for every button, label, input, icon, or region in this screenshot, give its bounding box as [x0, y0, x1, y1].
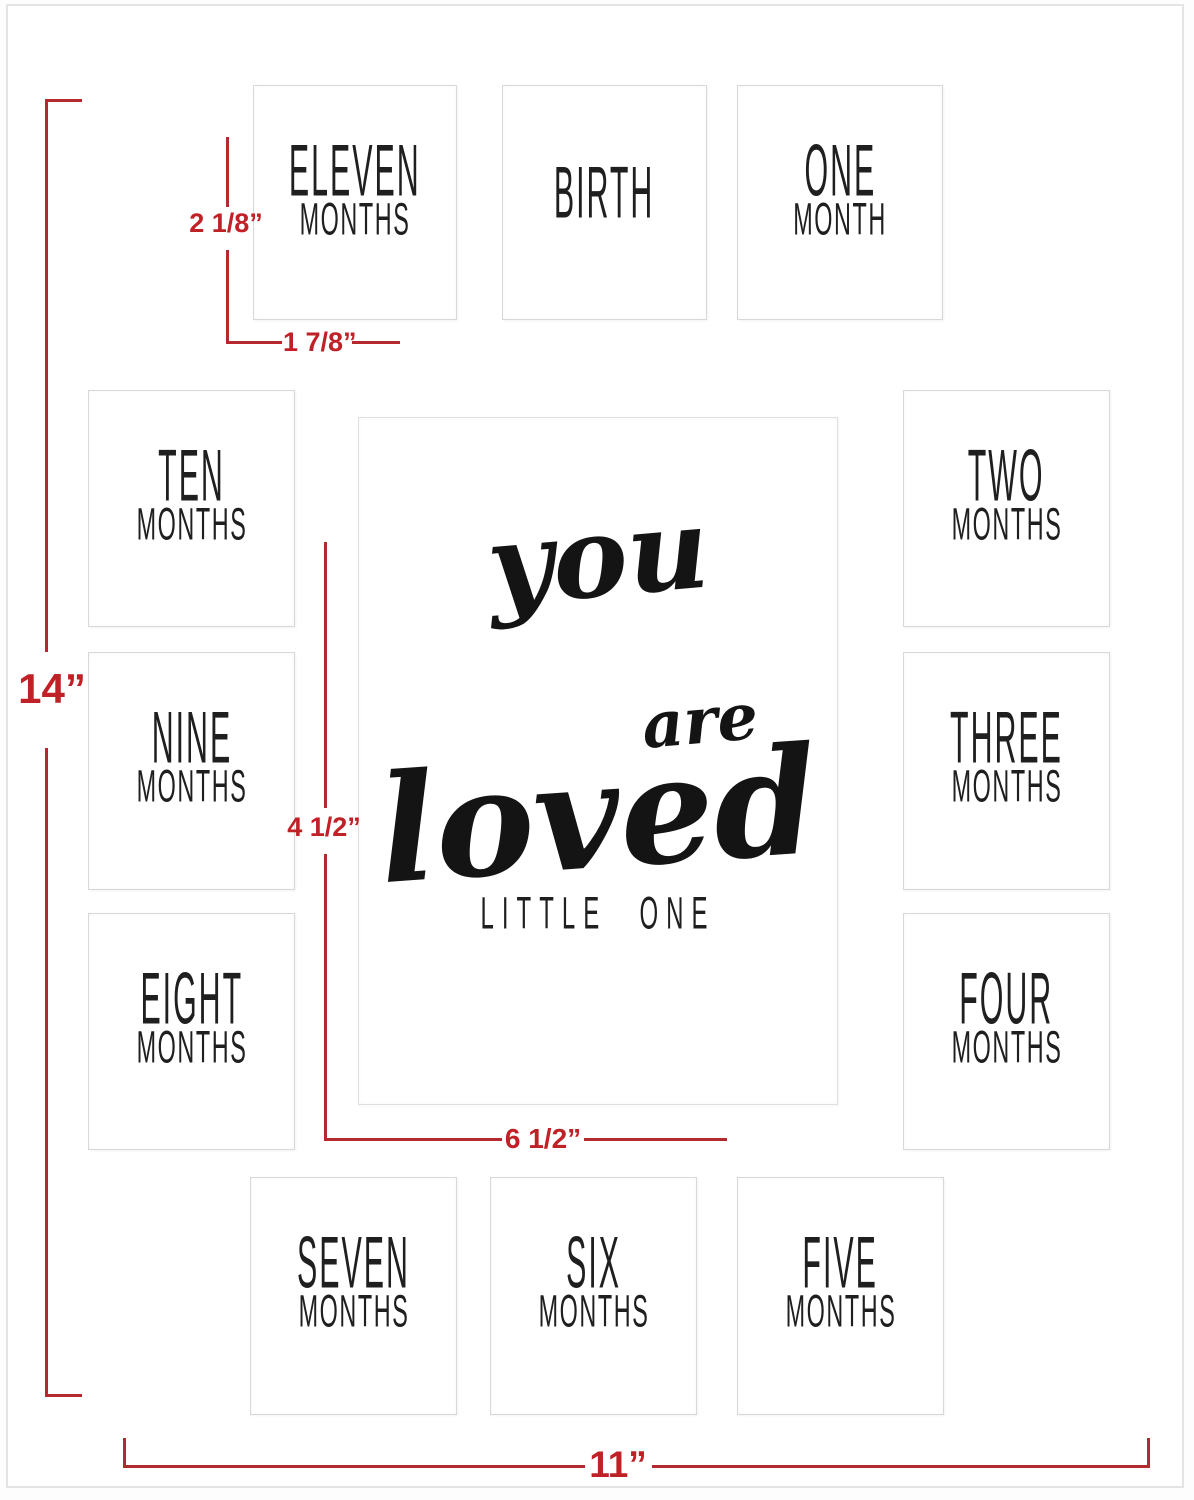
opening-one-month: ONE MONTH [737, 85, 943, 320]
dim-11in-left-tick [123, 1438, 126, 1468]
opening-sublabel: MONTHS [136, 1024, 247, 1075]
dim-label-2-1-8in: 2 1/8” [186, 210, 266, 237]
opening-birth: BIRTH [502, 85, 707, 320]
opening-sublabel: MONTH [793, 196, 887, 247]
dim-label-4-1-2in: 4 1/2” [287, 814, 361, 841]
dim-2-1-8in-line-upper [226, 137, 229, 207]
dim-1-7-8in-line-left [226, 341, 282, 344]
dim-label-14in: 14” [16, 668, 88, 710]
dim-6-1-2in-line-left [324, 1138, 502, 1141]
opening-sublabel: MONTHS [300, 196, 411, 247]
opening-eight-months: EIGHT MONTHS [88, 913, 295, 1150]
dim-label-1-7-8in: 1 7/8” [283, 329, 351, 356]
opening-sublabel: MONTHS [951, 501, 1062, 552]
opening-seven-months: SEVEN MONTHS [250, 1177, 457, 1415]
dim-14in-line-upper [45, 99, 48, 652]
center-subtitle-little-one: LITTLE ONE [406, 890, 790, 941]
opening-three-months: THREE MONTHS [903, 652, 1110, 890]
opening-ten-months: TEN MONTHS [88, 390, 295, 627]
dim-14in-bottom-foot [45, 1394, 82, 1397]
opening-five-months: FIVE MONTHS [737, 1177, 944, 1415]
milestone-mat-diagram: ELEVEN MONTHS BIRTH ONE MONTH TEN MONTHS… [0, 0, 1194, 1500]
opening-sublabel: MONTHS [136, 501, 247, 552]
opening-two-months: TWO MONTHS [903, 390, 1110, 627]
opening-four-months: FOUR MONTHS [903, 913, 1110, 1150]
opening-six-months: SIX MONTHS [490, 1177, 697, 1415]
opening-sublabel: MONTHS [538, 1288, 649, 1339]
opening-nine-months: NINE MONTHS [88, 652, 295, 890]
dim-2-1-8in-line-lower [226, 250, 229, 344]
dim-4-1-2in-line-lower [324, 854, 327, 1141]
opening-eleven-months: ELEVEN MONTHS [253, 85, 457, 320]
opening-sublabel: MONTHS [951, 1024, 1062, 1075]
dim-11in-right-tick [1147, 1438, 1150, 1468]
opening-sublabel: MONTHS [951, 763, 1062, 814]
dim-6-1-2in-line-right [584, 1138, 727, 1141]
opening-sublabel: MONTHS [298, 1288, 409, 1339]
center-script-loved: loved [343, 711, 854, 919]
opening-label: BIRTH [554, 150, 654, 233]
dim-1-7-8in-line-right [352, 341, 400, 344]
dim-11in-line-right [652, 1465, 1150, 1468]
dim-4-1-2in-line-upper [324, 542, 327, 808]
dim-14in-top-foot [45, 99, 82, 102]
dim-11in-line-left [123, 1465, 585, 1468]
opening-sublabel: MONTHS [136, 763, 247, 814]
dim-label-11in: 11” [588, 1446, 648, 1483]
opening-sublabel: MONTHS [785, 1288, 896, 1339]
dim-label-6-1-2in: 6 1/2” [504, 1125, 582, 1153]
dim-14in-line-lower [45, 748, 48, 1397]
